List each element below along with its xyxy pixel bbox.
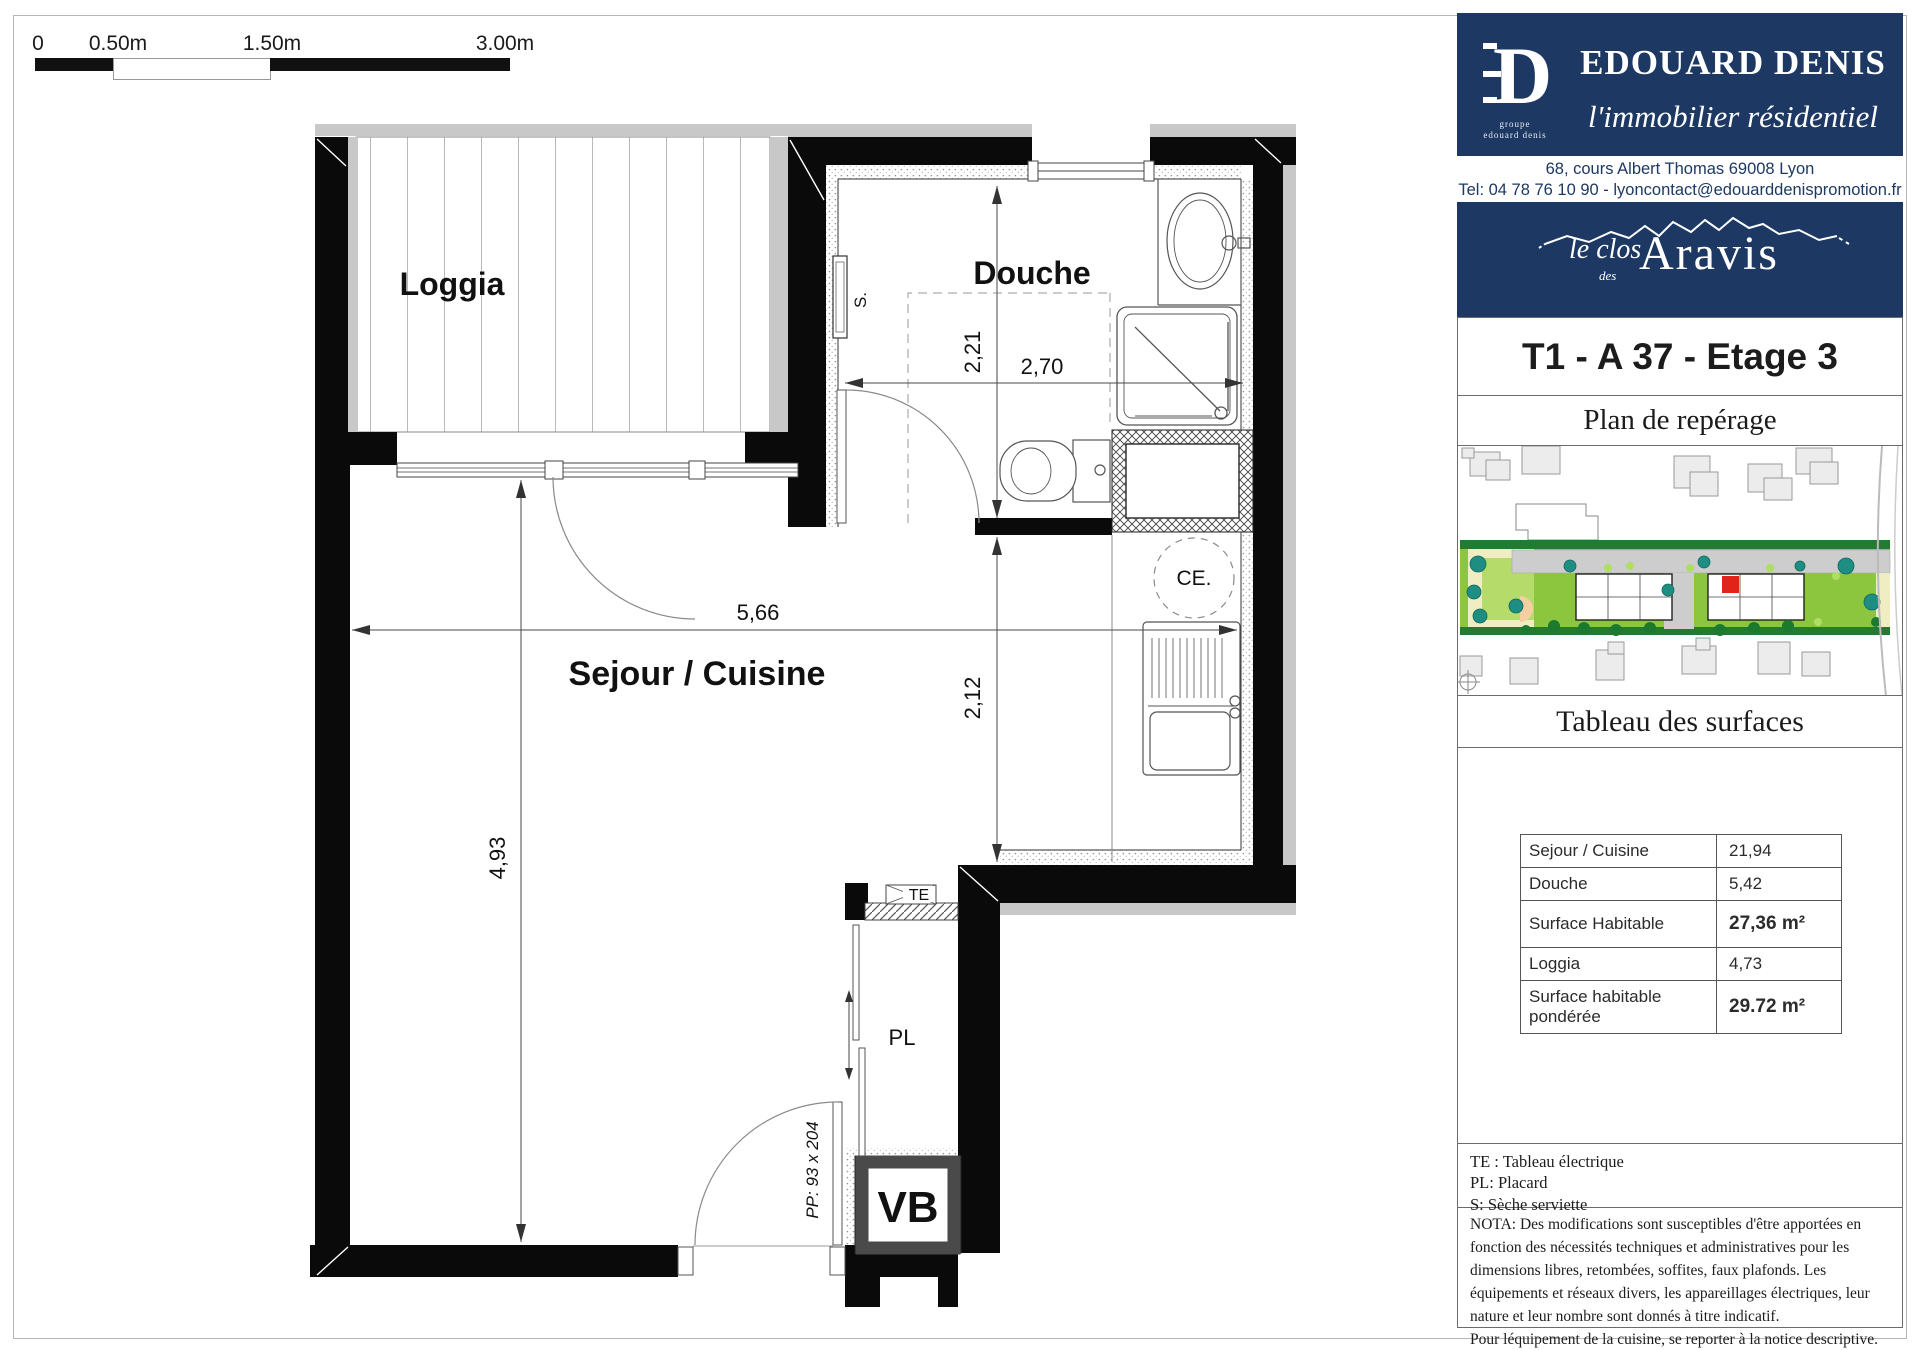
plan-sheet: 0 0.50m 1.50m 3.00m: [0, 0, 1920, 1350]
table-cell-value: 4,73: [1716, 948, 1841, 980]
surfaces-table: Sejour / Cuisine21,94Douche5,42Surface H…: [1520, 834, 1842, 1034]
room-label-loggia: Loggia: [400, 266, 505, 302]
nota-box: NOTA: Des modifications sont susceptible…: [1458, 1208, 1902, 1327]
map-title: Plan de repérage: [1458, 396, 1902, 446]
legend-box: TE : Tableau électriquePL: PlacardS: Sèc…: [1458, 1144, 1902, 1208]
surfaces-title: Tableau des surfaces: [1458, 696, 1902, 748]
closet-sliding-door: [845, 925, 865, 1163]
legend-line: TE : Tableau électrique: [1470, 1151, 1890, 1172]
entry-door-size-label: PP: 93 x 204: [803, 1121, 822, 1218]
dim-sejour-depth: 4,93: [485, 837, 510, 880]
location-map: [1458, 446, 1902, 696]
dim-douche-width: 2,70: [1021, 354, 1064, 379]
table-cell-label: Douche: [1521, 871, 1716, 897]
unit-title: T1 - A 37 - Etage 3: [1458, 318, 1902, 396]
room-label-sejour: Sejour / Cuisine: [569, 655, 826, 693]
table-row: Douche5,42: [1521, 868, 1841, 901]
kitchen-sink: [1143, 622, 1240, 775]
dim-douche-depth: 2,21: [960, 331, 985, 374]
project-name: Aravis: [1639, 226, 1779, 281]
washbasin: [1158, 179, 1250, 305]
table-cell-label: Surface Habitable: [1521, 911, 1716, 937]
floor-plan-drawing: PP: 93 x 204 S.: [0, 0, 1455, 1350]
project-middle: des: [1599, 268, 1616, 284]
project-prefix: le clos: [1569, 234, 1641, 266]
table-cell-value: 27,36 m²: [1716, 901, 1841, 947]
brand-tagline: l'immobilier résidentiel: [1565, 99, 1901, 135]
technical-shaft: [1112, 430, 1253, 532]
vb-label: VB: [877, 1183, 938, 1232]
brand-monogram-icon: D: [1483, 33, 1563, 122]
nota-line: Pour léquipement de la cuisine, se repor…: [1470, 1329, 1890, 1350]
project-banner: le clos des Aravis: [1457, 202, 1903, 317]
table-row: Sejour / Cuisine21,94: [1521, 835, 1841, 868]
wall-insulation: [826, 165, 1253, 1253]
table-cell-value: 21,94: [1716, 835, 1841, 867]
dim-sejour-width: 5,66: [737, 600, 780, 625]
brand-header: D EDOUARD DENIS groupe edouard denis l'i…: [1457, 13, 1903, 156]
water-heater-label: CE.: [1176, 567, 1211, 590]
brand-group-line2: edouard denis: [1463, 130, 1567, 141]
toilet: [1000, 440, 1110, 502]
brand-name: EDOUARD DENIS: [1565, 43, 1901, 83]
table-cell-value: 5,42: [1716, 868, 1841, 900]
towel-dryer: [833, 256, 847, 338]
brand-group-text: groupe edouard denis: [1463, 119, 1567, 141]
table-cell-label: Sejour / Cuisine: [1521, 838, 1716, 864]
table-row: Surface Habitable27,36 m²: [1521, 901, 1841, 948]
brand-address: 68, cours Albert Thomas 69008 Lyon: [1457, 159, 1903, 180]
table-row: Surface habitable pondérée29.72 m²: [1521, 981, 1841, 1033]
brand-group-line1: groupe: [1463, 119, 1567, 130]
table-cell-value: 29.72 m²: [1716, 981, 1841, 1033]
closet-label: PL: [889, 1025, 916, 1050]
brand-address-band: 68, cours Albert Thomas 69008 Lyon Tel: …: [1457, 156, 1903, 202]
room-label-douche: Douche: [973, 255, 1090, 291]
legend-line: PL: Placard: [1470, 1172, 1890, 1193]
sidebar-panel: T1 - A 37 - Etage 3 Plan de repérage: [1457, 317, 1903, 1328]
table-row: Loggia4,73: [1521, 948, 1841, 981]
loggia-door-swing: [553, 477, 695, 619]
window-sejour-band: [397, 461, 798, 479]
nota-line: NOTA: Des modifications sont susceptible…: [1470, 1214, 1890, 1329]
svg-text:D: D: [1493, 33, 1552, 117]
site-strip: [1460, 540, 1890, 635]
dim-kitchen-depth: 2,12: [960, 677, 985, 720]
electrical-panel-label: TE: [909, 887, 929, 904]
table-cell-label: Loggia: [1521, 951, 1716, 977]
shower-tray: [1117, 307, 1237, 425]
window-douche: [1028, 161, 1154, 181]
surfaces-section: Sejour / Cuisine21,94Douche5,42Surface H…: [1458, 748, 1902, 1144]
towel-dryer-label: S.: [851, 292, 870, 308]
brand-contact: Tel: 04 78 76 10 90 - lyoncontact@edouar…: [1457, 180, 1903, 201]
unit-location-marker: [1722, 576, 1739, 593]
table-cell-label: Surface habitable pondérée: [1521, 984, 1716, 1030]
